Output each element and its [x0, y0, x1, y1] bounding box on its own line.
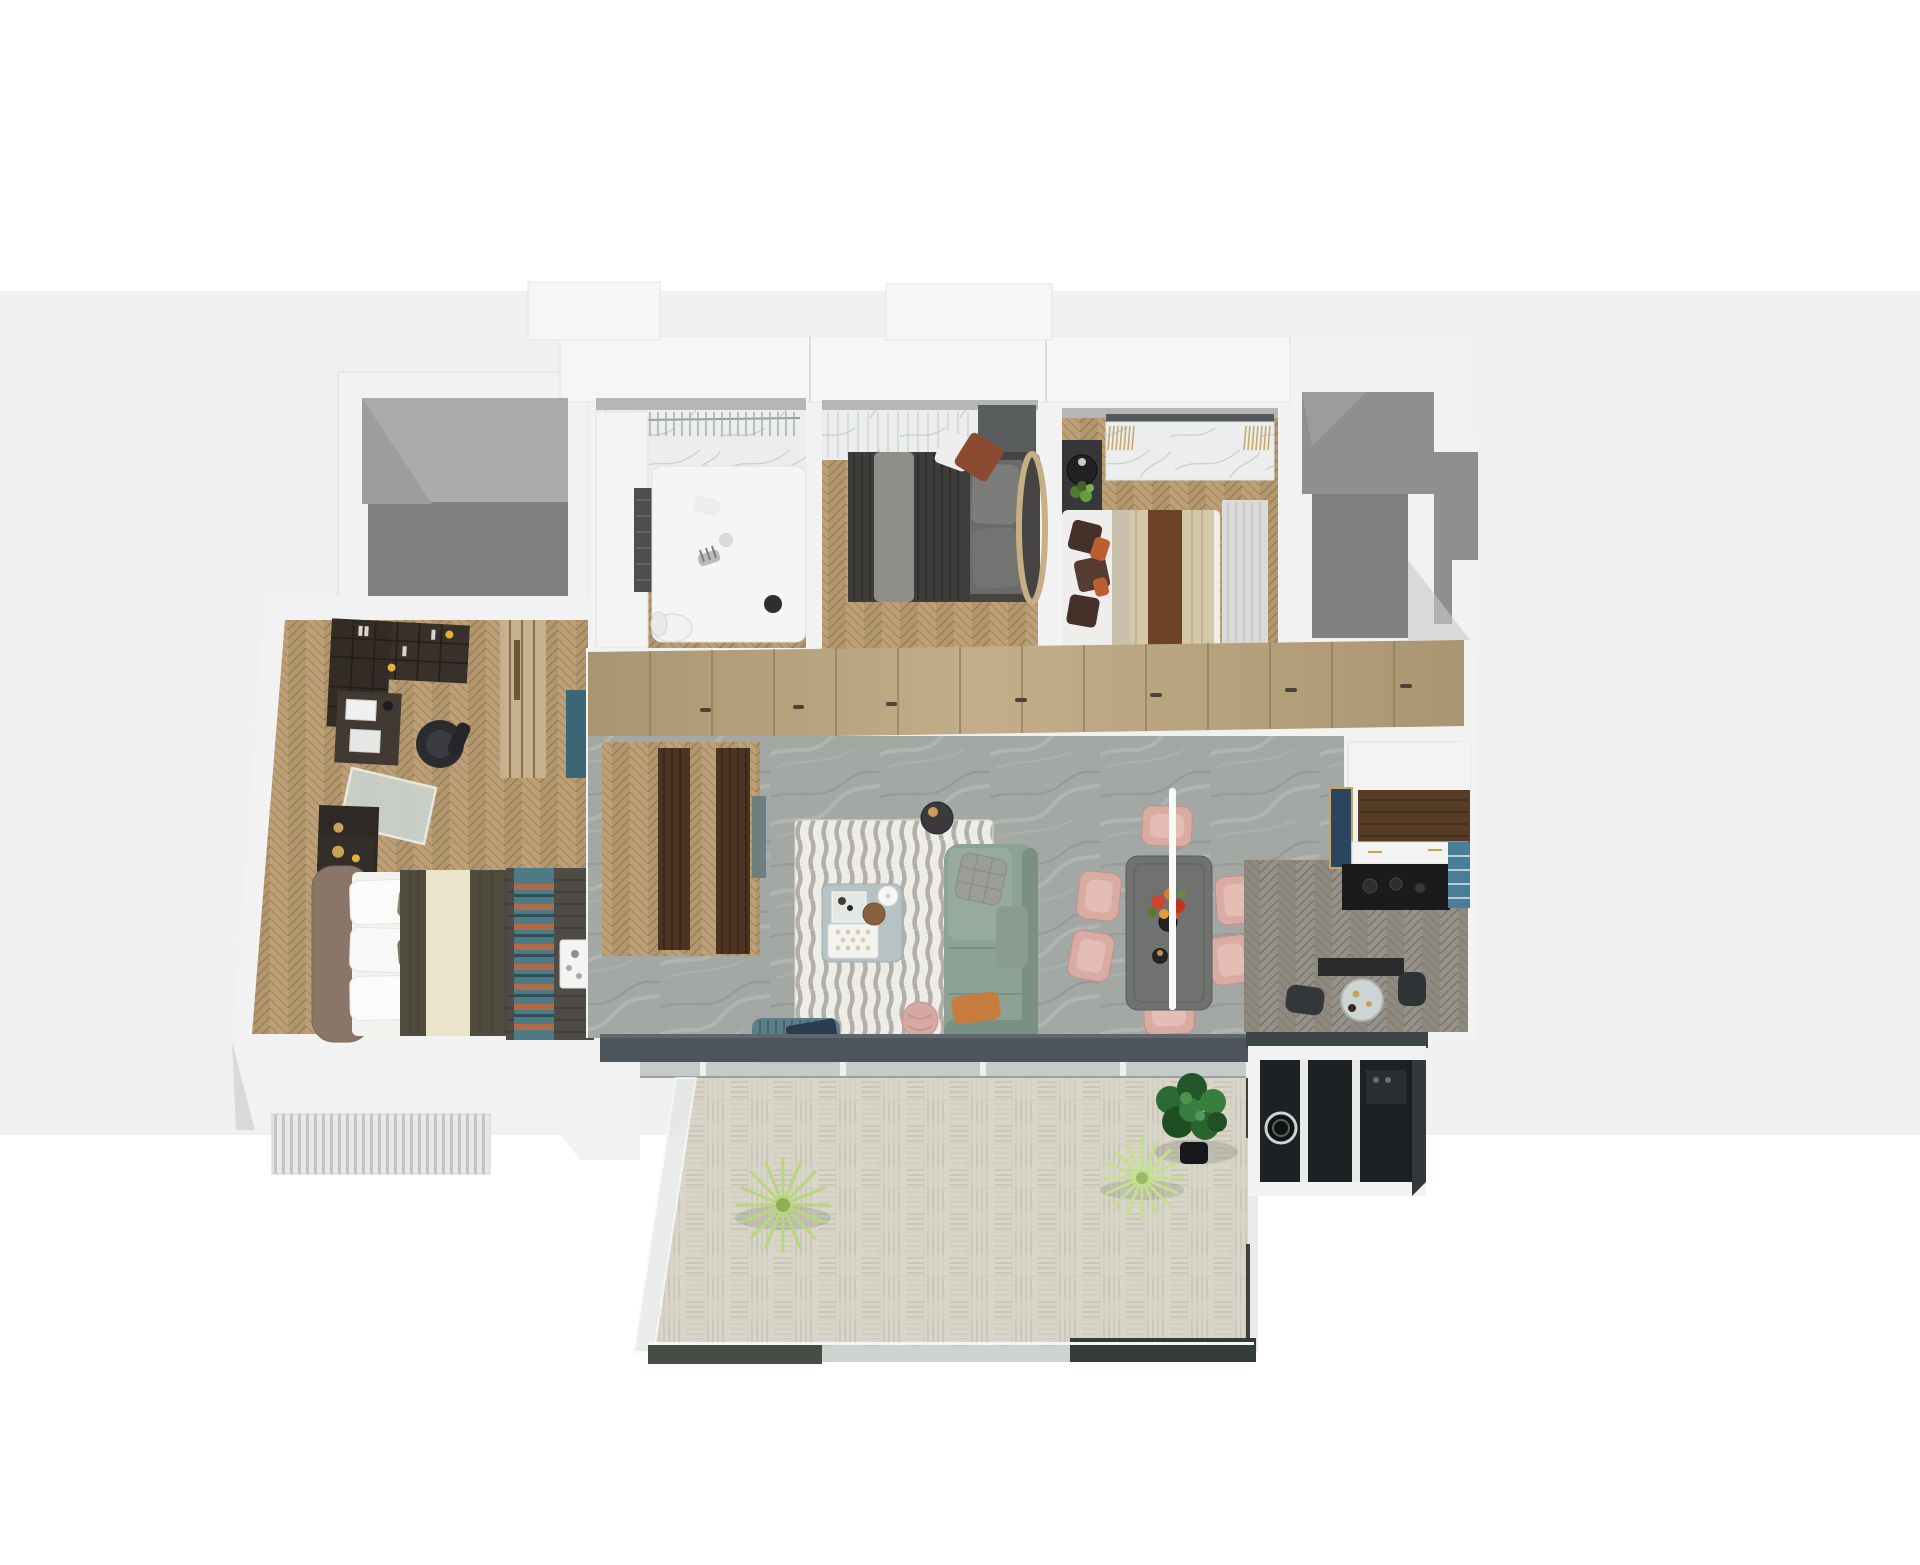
pink-pouf: [902, 1002, 938, 1038]
bed3-curtain: [1222, 500, 1268, 650]
walnut-door-jamb-1: [658, 748, 690, 950]
bar-stool-1: [1284, 983, 1326, 1016]
roof-slab-band: [560, 336, 1290, 402]
utility-sill: [1246, 1032, 1428, 1048]
spiky-plant-right: [1100, 1138, 1184, 1218]
bed2-bed: [848, 429, 1045, 602]
sofa-side-pillow: [996, 906, 1028, 968]
bed3-candle: [1078, 458, 1086, 466]
bay-slatted-bench: [272, 1114, 490, 1174]
roof-box-left: [528, 282, 660, 340]
glass-door-band: [640, 1062, 1246, 1078]
side-table: [921, 802, 953, 834]
utility-balcony: [1246, 1032, 1428, 1196]
basket: [863, 903, 885, 925]
window-sill: [600, 1034, 1248, 1078]
utility-appliance: [1366, 1070, 1406, 1104]
walnut-countertop: [1358, 790, 1470, 842]
stairwell-lower: [1312, 494, 1408, 638]
study-desk: [334, 690, 402, 765]
desk-monitor: [345, 699, 376, 721]
bedroom-3: [1046, 408, 1290, 658]
master-bed: [312, 866, 530, 1042]
coffee-table: [822, 884, 902, 962]
pendant-lamp: [764, 595, 782, 613]
terrace-bottom-wall: [345, 596, 588, 622]
sill-band: [600, 1034, 1248, 1062]
navy-gold-panel: [1330, 788, 1352, 868]
bed3-marble-console: [1106, 422, 1274, 480]
bed3-bed: [1062, 510, 1220, 650]
foot-bench: [506, 868, 594, 1040]
bar-stool-2: [1398, 972, 1426, 1006]
candle: [928, 807, 938, 817]
glass-door-leaf: [752, 796, 766, 878]
island-top: [1348, 742, 1470, 792]
terrace-floor-lower: [368, 502, 568, 596]
bed2-gray-throw: [874, 452, 914, 602]
railing-dark-right: [1070, 1338, 1256, 1362]
glass-bar-table: [1341, 979, 1383, 1021]
desk-printer: [349, 729, 380, 753]
roof-box-right: [886, 284, 1052, 340]
terrace-void: [345, 398, 588, 622]
bench-tray: [560, 940, 590, 988]
floor-plan-render: [0, 0, 1920, 1565]
master-wardrobe: [500, 620, 546, 778]
fig-pot: [1180, 1142, 1208, 1164]
bed3-console-rail: [1106, 414, 1274, 422]
pendant-cord: [1169, 788, 1176, 1010]
railing-dark-left: [648, 1342, 822, 1364]
kids-wall-ledge: [596, 398, 806, 410]
bedroom-2: [812, 400, 1046, 660]
utility-open-frame: [1412, 1060, 1426, 1196]
main-balcony: [634, 1073, 1258, 1364]
kids-tall-shelf: [634, 488, 652, 592]
bar-counter: [1318, 958, 1404, 976]
quilted-pillow: [954, 852, 1009, 907]
bed3-pillow-3: [1066, 594, 1101, 629]
kids-bedroom: [588, 398, 812, 660]
bed-duvet-cream-stripe: [426, 870, 470, 1036]
sofa: [944, 844, 1038, 1044]
screenshot-root: [0, 0, 1920, 1565]
bed2-pillow-2: [970, 527, 1019, 589]
washing-machine: [1266, 1113, 1296, 1143]
zigzag-throw: [514, 868, 554, 1040]
